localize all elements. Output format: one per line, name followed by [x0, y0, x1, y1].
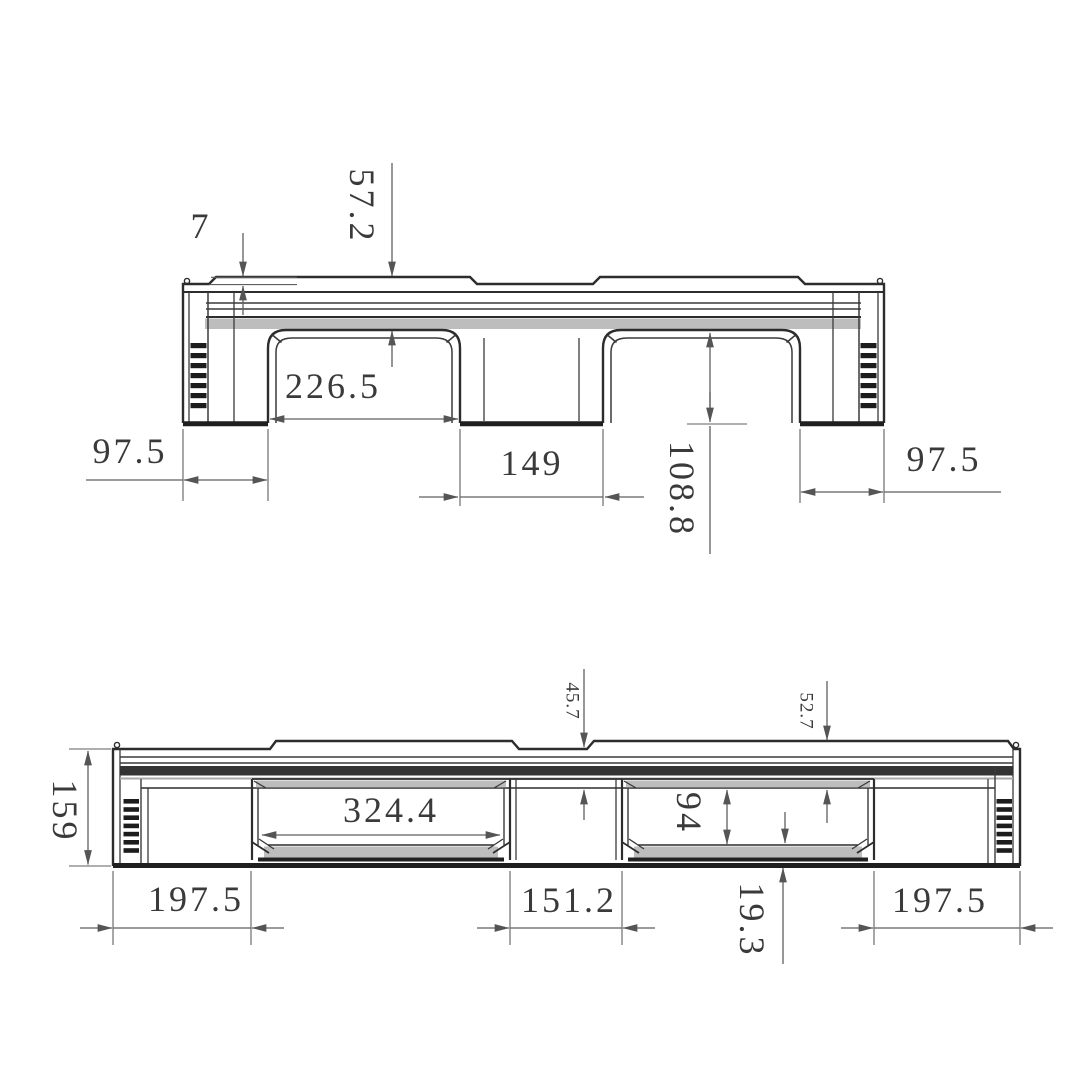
dim-label-bottom-deck-thickness: 19.3	[734, 883, 770, 958]
dim-label-left-end-width: 97.5	[93, 433, 168, 469]
right-fork-opening	[603, 330, 800, 423]
left-vent-hatch	[124, 799, 140, 853]
dim-label-window-width: 324.4	[343, 792, 439, 828]
dim-label-deck-thickness: 57.2	[344, 169, 380, 244]
left-vent-hatch	[191, 343, 207, 408]
dim-label-center-block-width: 151.2	[521, 882, 617, 918]
deck-dark-band	[120, 766, 1013, 776]
technical-drawing-page: 7 57.2 226.5 149 108.8 97.5 97.5 159 45.…	[0, 0, 1080, 1080]
dim-label-deck-thickness-notch: 45.7	[563, 682, 582, 719]
right-vent-hatch	[861, 343, 877, 408]
dim-label-right-end-width: 97.5	[907, 441, 982, 477]
dim-label-right-end-width-bottom: 197.5	[892, 882, 988, 918]
dim-label-center-leg-width: 149	[501, 445, 564, 481]
dim-label-left-end-width-bottom: 197.5	[148, 881, 244, 917]
right-vent-hatch	[997, 799, 1013, 853]
dim-label-lip-height: 7	[191, 208, 212, 244]
right-corner-nub	[1013, 742, 1018, 747]
dim-label-fork-opening-width: 226.5	[285, 368, 381, 404]
dim-label-window-height: 94	[671, 792, 707, 834]
end-view-geometry	[113, 741, 1020, 866]
dim-label-deck-thickness-full: 52.7	[797, 692, 816, 729]
left-corner-nub	[114, 742, 119, 747]
dim-label-overall-height: 159	[47, 780, 83, 843]
side-view-dimensions	[86, 163, 1001, 554]
dim-label-opening-height: 108.8	[664, 441, 700, 537]
